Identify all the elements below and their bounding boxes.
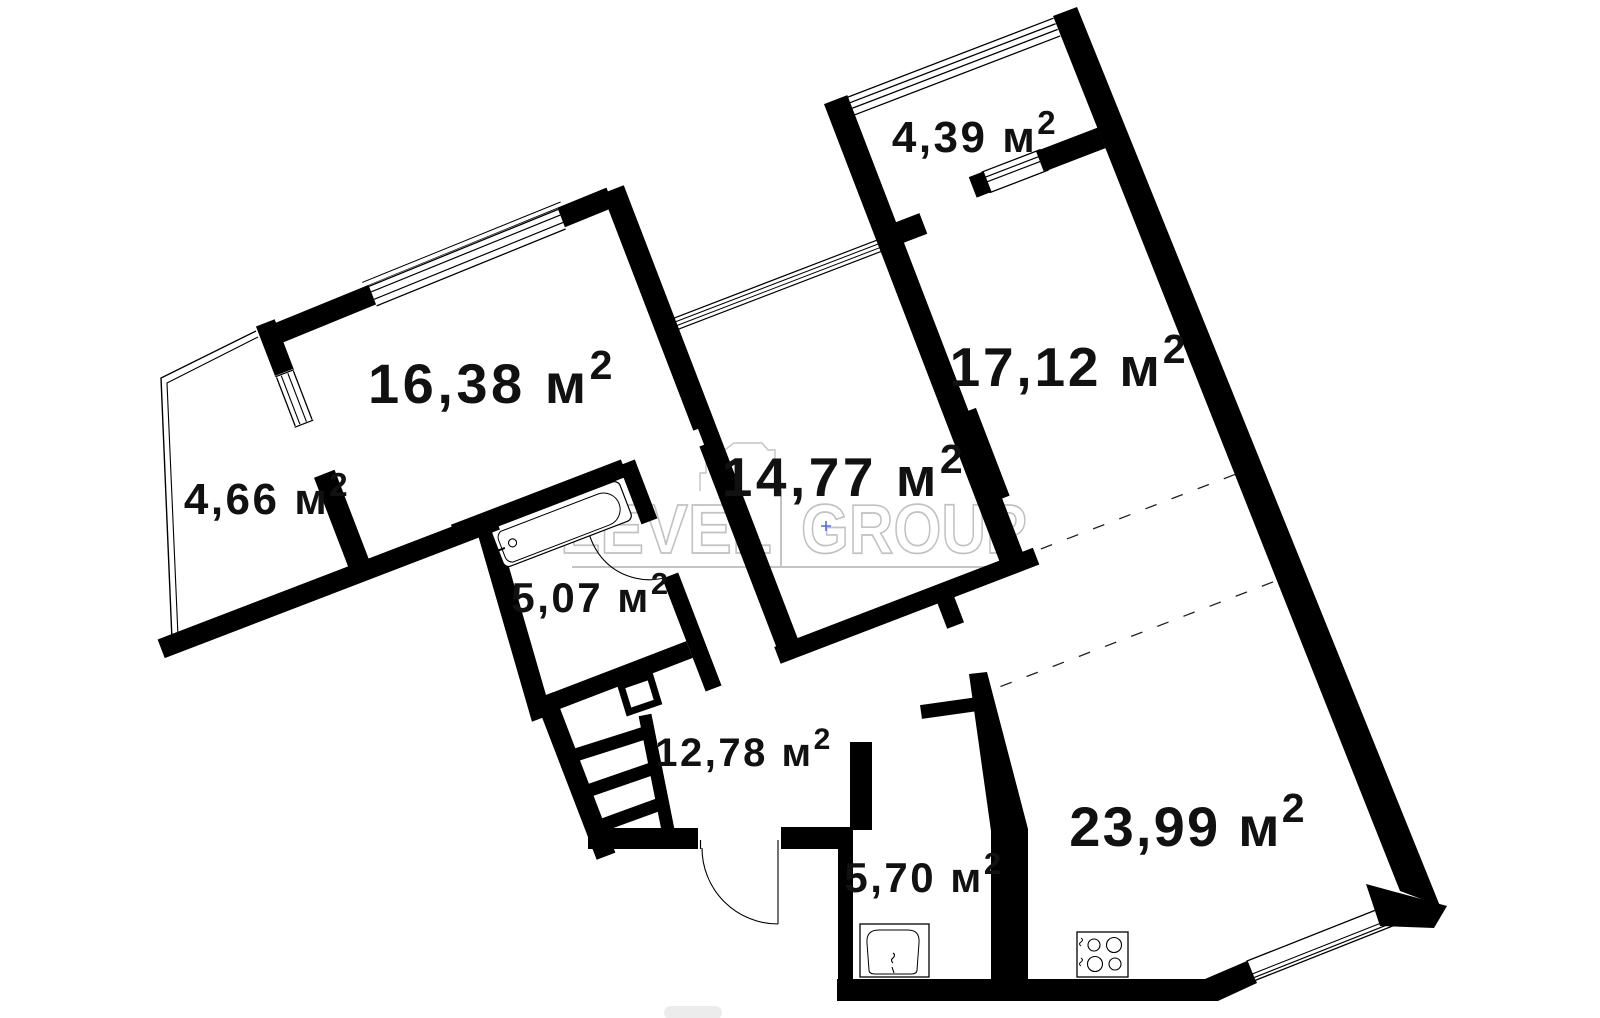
svg-text:5,70 м2: 5,70 м2 [844,846,1003,901]
svg-text:5,07 м2: 5,07 м2 [511,566,670,621]
svg-text:12,78 м2: 12,78 м2 [655,723,833,775]
svg-text:14,77 м2: 14,77 м2 [722,436,966,508]
svg-text:4,39 м2: 4,39 м2 [892,104,1058,162]
svg-text:23,99 м2: 23,99 м2 [1069,785,1307,858]
svg-text:4,66 м2: 4,66 м2 [184,466,350,524]
svg-text:16,38 м2: 16,38 м2 [368,342,616,415]
svg-text:17,12 м2: 17,12 м2 [950,326,1189,398]
